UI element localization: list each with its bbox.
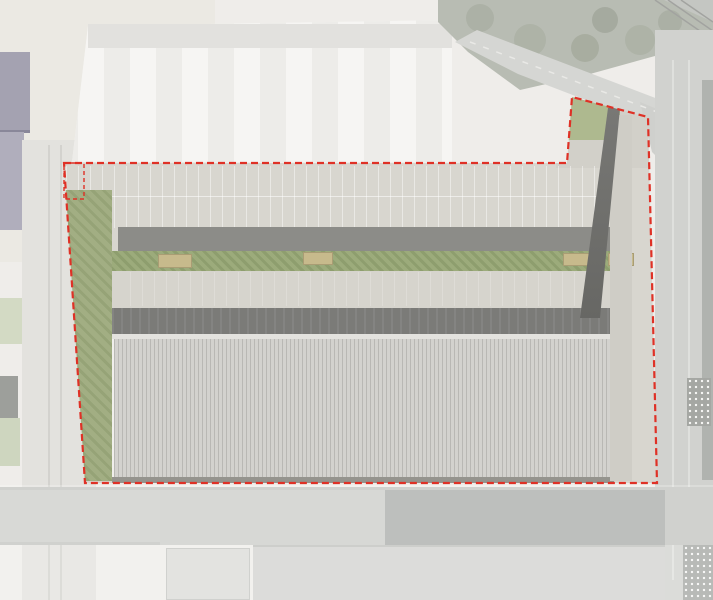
site-plan-canvas — [0, 0, 713, 600]
wash-overlay-bottom — [0, 485, 713, 600]
